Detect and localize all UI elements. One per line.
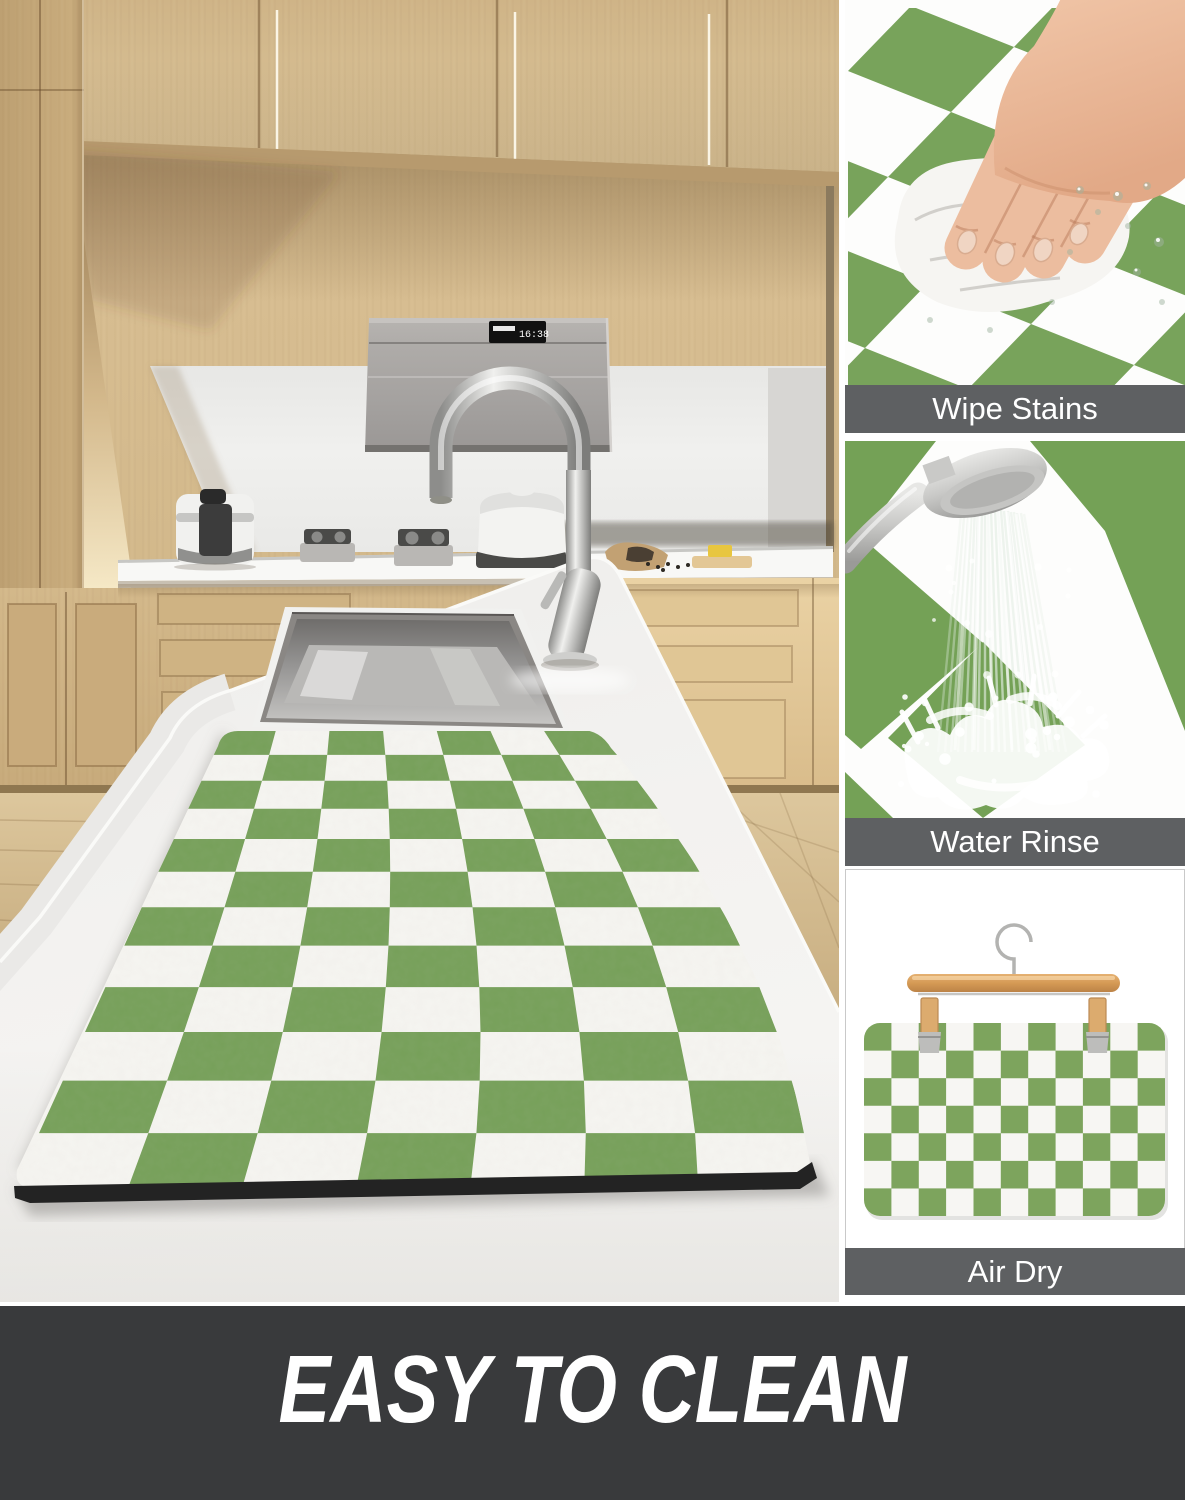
- svg-text:16:38: 16:38: [519, 330, 549, 341]
